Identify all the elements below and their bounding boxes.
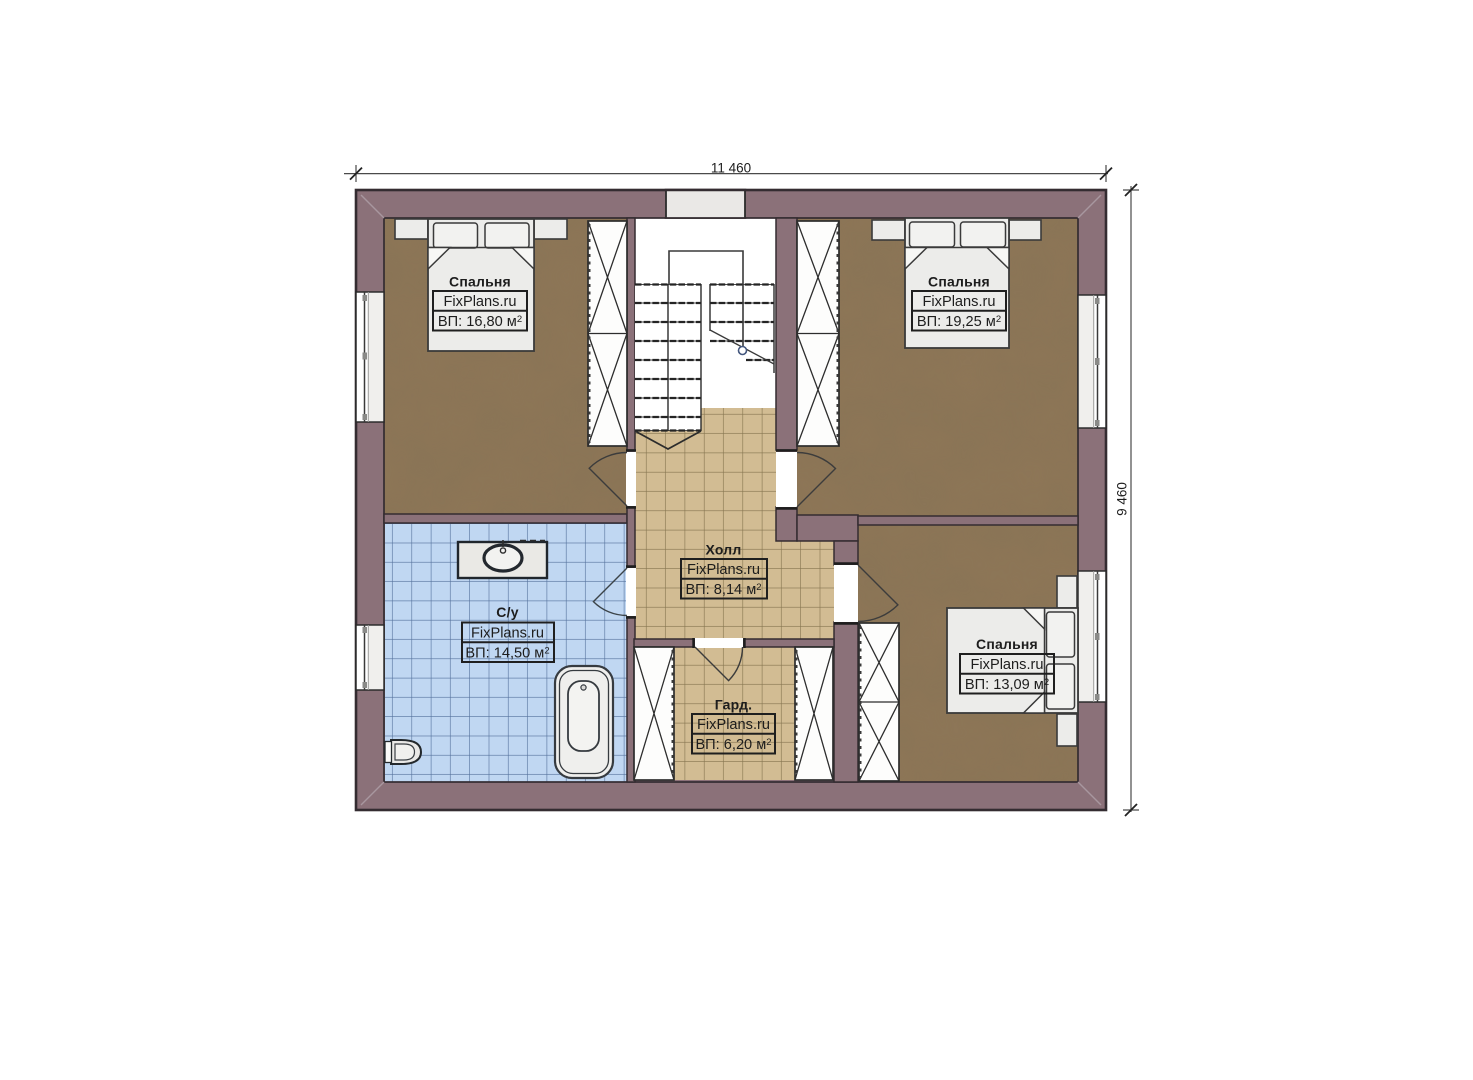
svg-text:FixPlans.ru: FixPlans.ru bbox=[444, 294, 517, 310]
svg-text:FixPlans.ru: FixPlans.ru bbox=[697, 717, 770, 733]
svg-text:9 460: 9 460 bbox=[1115, 482, 1130, 516]
svg-text:Спальня: Спальня bbox=[449, 274, 511, 290]
svg-text:ВП: 6,20 м2: ВП: 6,20 м2 bbox=[695, 737, 771, 753]
svg-text:С/у: С/у bbox=[496, 604, 518, 620]
svg-text:Спальня: Спальня bbox=[976, 636, 1038, 652]
svg-text:ВП: 16,80 м2: ВП: 16,80 м2 bbox=[438, 314, 522, 330]
svg-text:Спальня: Спальня bbox=[928, 274, 990, 290]
svg-text:FixPlans.ru: FixPlans.ru bbox=[471, 626, 544, 642]
svg-text:ВП: 13,09 м2: ВП: 13,09 м2 bbox=[965, 677, 1049, 693]
svg-text:FixPlans.ru: FixPlans.ru bbox=[687, 562, 760, 578]
svg-text:ВП: 8,14 м2: ВП: 8,14 м2 bbox=[685, 582, 761, 598]
svg-text:FixPlans.ru: FixPlans.ru bbox=[971, 657, 1044, 673]
svg-text:ВП: 14,50 м2: ВП: 14,50 м2 bbox=[465, 645, 549, 661]
svg-text:Гард.: Гард. bbox=[715, 697, 753, 713]
svg-text:Холл: Холл bbox=[706, 542, 742, 558]
svg-text:ВП: 19,25 м2: ВП: 19,25 м2 bbox=[917, 314, 1001, 330]
svg-text:FixPlans.ru: FixPlans.ru bbox=[923, 294, 996, 310]
svg-text:11 460: 11 460 bbox=[711, 161, 751, 176]
